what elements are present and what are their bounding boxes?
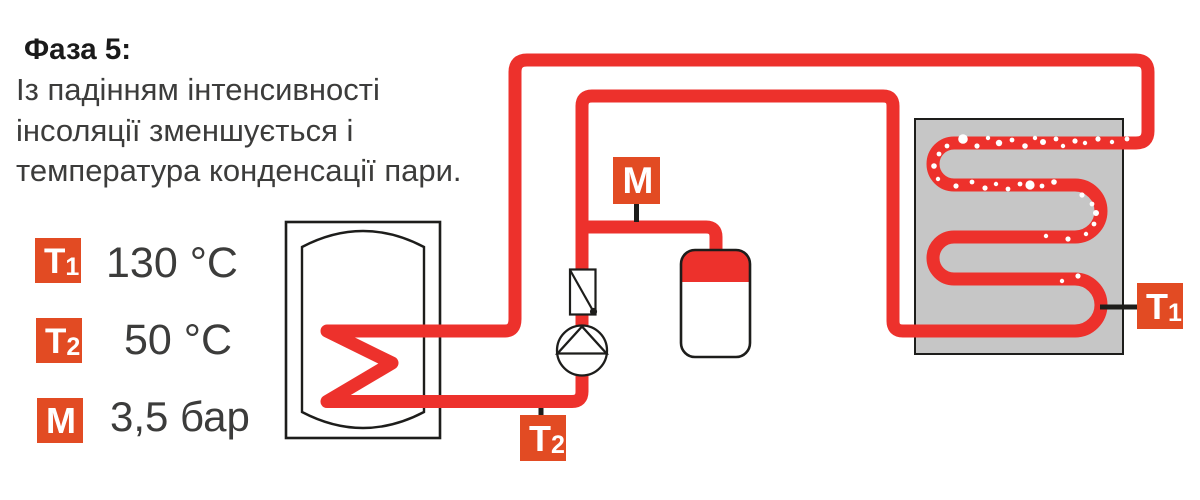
svg-text:Фаза 5:: Фаза 5:	[24, 33, 131, 66]
svg-text:M: M	[46, 400, 76, 441]
svg-text:Із падінням інтенсивності: Із падінням інтенсивності	[16, 72, 380, 107]
svg-text:130 °C: 130 °C	[106, 239, 238, 287]
svg-text:температура конденсації пари.: температура конденсації пари.	[16, 153, 462, 188]
svg-text:інсоляції зменшується і: інсоляції зменшується і	[16, 113, 353, 148]
svg-text:3,5 бар: 3,5 бар	[110, 393, 250, 440]
svg-text:50 °C: 50 °C	[124, 316, 232, 364]
svg-text:M: M	[623, 160, 654, 201]
